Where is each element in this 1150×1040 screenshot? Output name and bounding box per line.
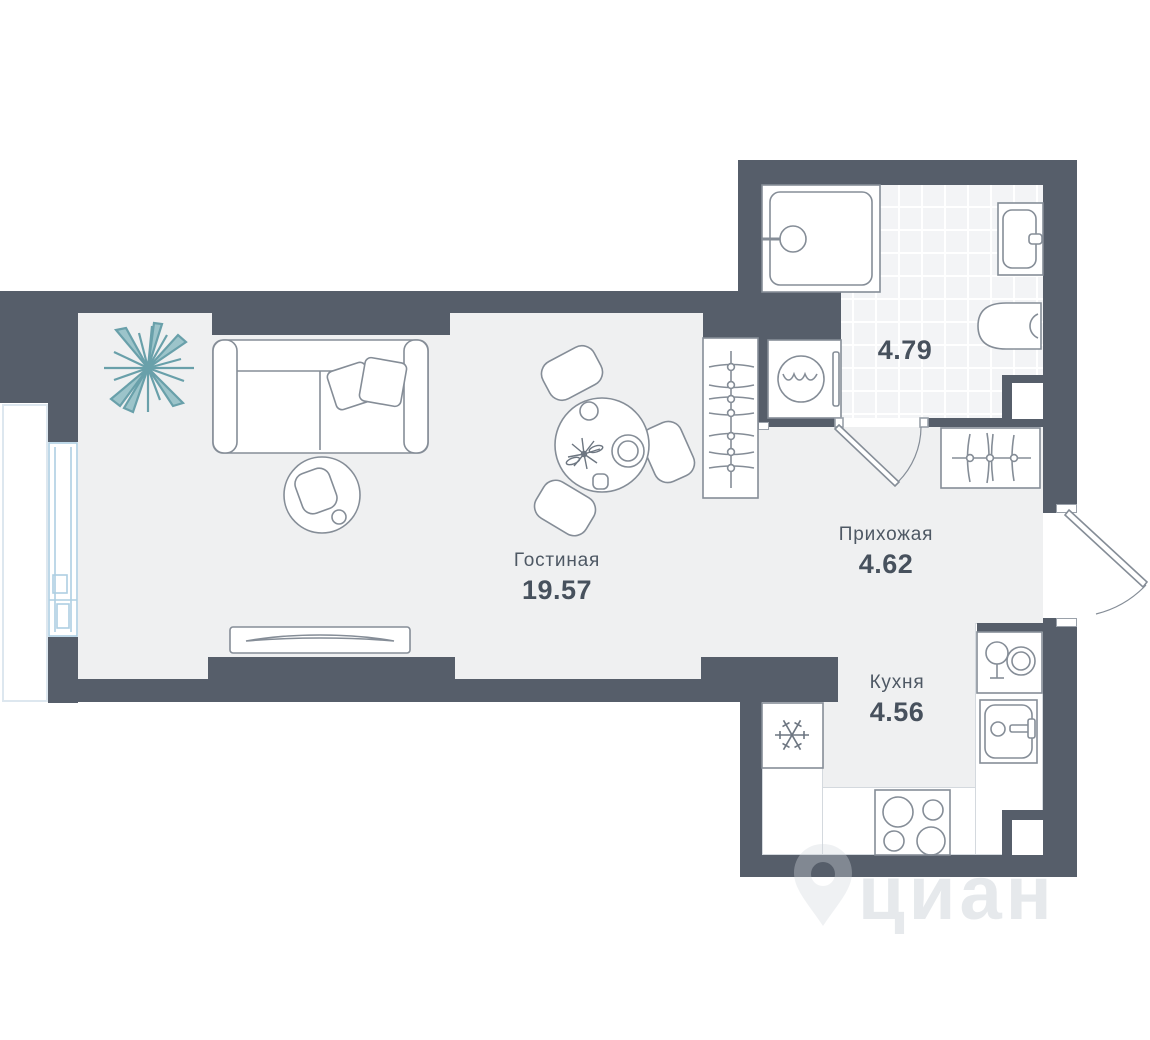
stove-icon	[875, 790, 950, 855]
armchair-icon	[284, 457, 360, 533]
room-area: 4.62	[786, 549, 986, 580]
sofa-icon	[213, 340, 428, 453]
glass-icon	[593, 474, 608, 489]
shower-icon	[762, 185, 880, 292]
washing-machine-icon	[768, 340, 841, 418]
pillow-icon	[358, 357, 407, 408]
dining-chair-icon	[537, 341, 608, 405]
room-label-bathroom: 4.79	[855, 335, 955, 366]
room-name: Гостиная	[457, 550, 657, 572]
window-icon	[49, 443, 77, 636]
bathroom-door-icon	[835, 418, 928, 486]
plate-icon	[612, 435, 644, 467]
dining-set	[529, 341, 699, 541]
room-area: 19.57	[457, 575, 657, 606]
entrance-door-icon	[1065, 510, 1147, 614]
floorplan-canvas: Гостиная 19.57 Прихожая 4.62 Кухня 4.56 …	[0, 0, 1150, 1040]
room-label-living: Гостиная 19.57	[457, 550, 657, 606]
tv-stand-icon	[230, 627, 410, 653]
room-label-kitchen: Кухня 4.56	[797, 672, 997, 728]
room-label-hallway: Прихожая 4.62	[786, 524, 986, 580]
room-name: Прихожая	[786, 524, 986, 546]
coat-rack-icon	[941, 428, 1040, 488]
room-area: 4.56	[797, 697, 997, 728]
plant-icon	[104, 323, 194, 412]
bathroom-sink-icon	[998, 203, 1043, 275]
wardrobe-hangers-icon	[703, 338, 758, 498]
room-area: 4.79	[855, 335, 955, 366]
furniture-layer	[0, 0, 1150, 1040]
toilet-icon	[978, 303, 1041, 349]
room-name: Кухня	[797, 672, 997, 694]
